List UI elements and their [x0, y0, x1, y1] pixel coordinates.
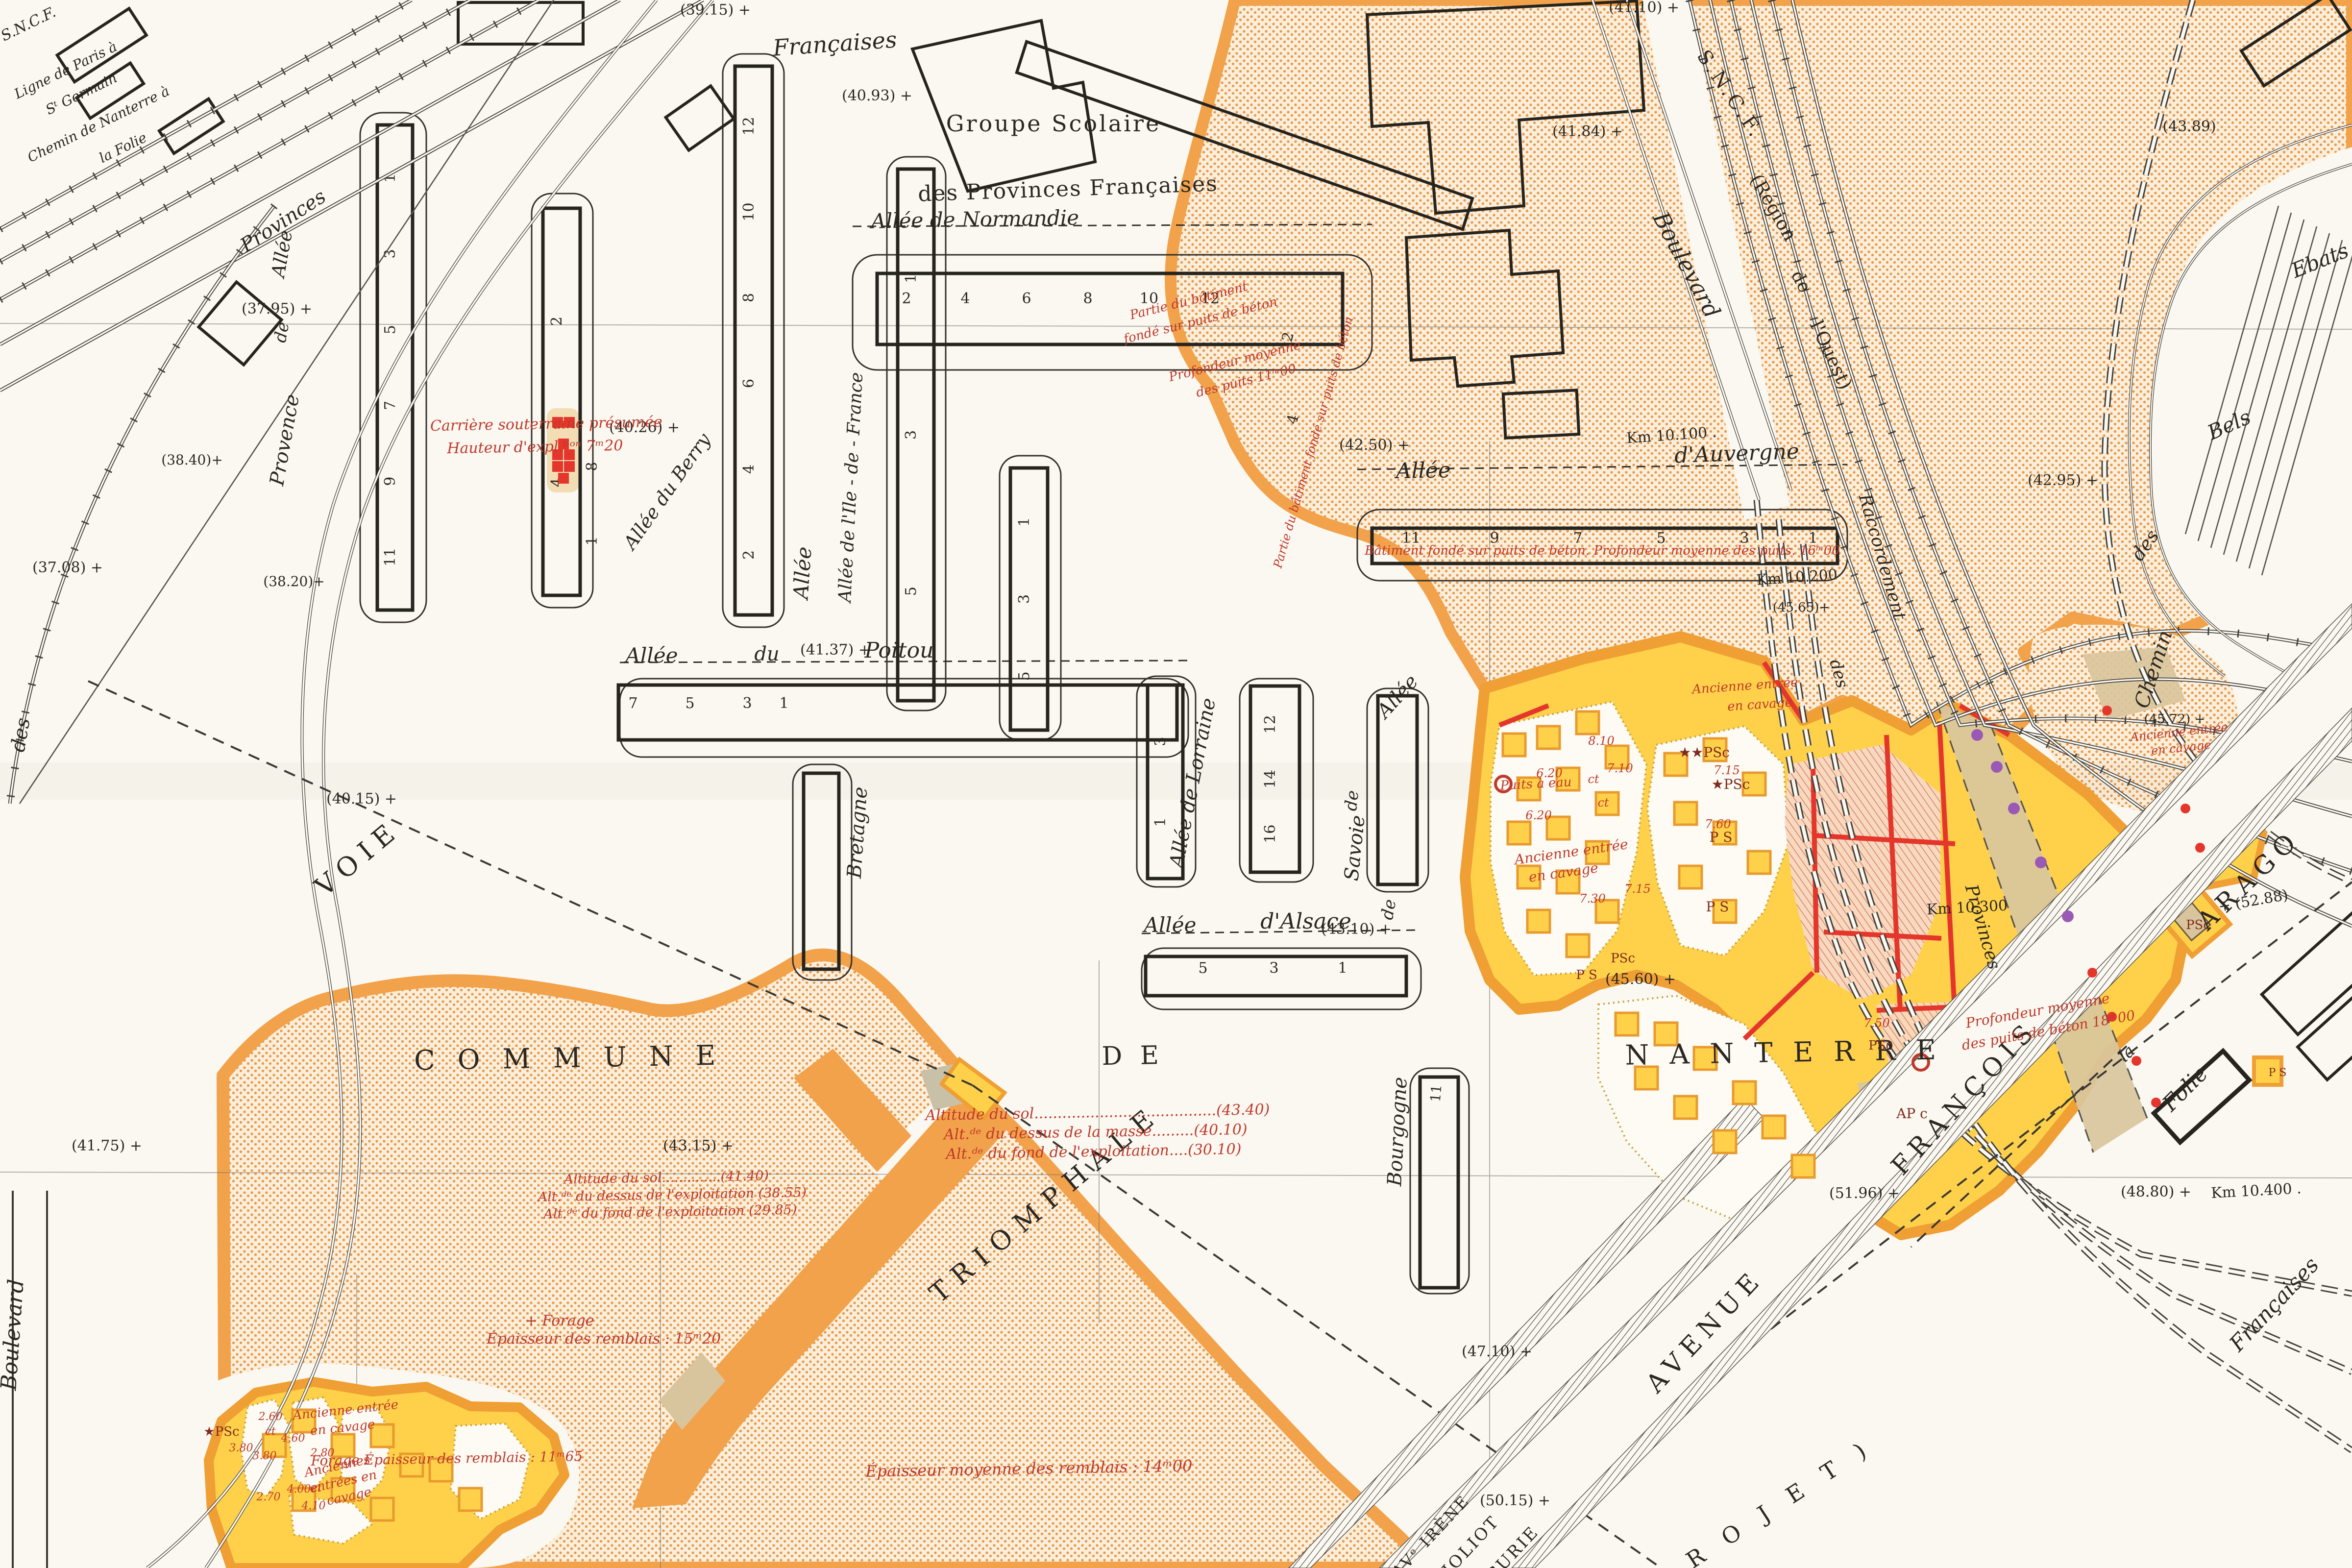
dep-13: 2.80 — [310, 1447, 335, 1459]
quarry-pillar — [459, 1488, 482, 1511]
red-dot-marker — [2087, 968, 2097, 978]
ps-2: ★PSc — [1712, 776, 1750, 792]
carriere-red-square — [558, 473, 569, 484]
purple-dot-marker — [2035, 857, 2047, 868]
red-dot-marker — [2180, 804, 2190, 813]
carriere-red-square — [564, 461, 575, 472]
lbl-de-bourgogne-sm: de — [1377, 898, 1400, 921]
building-strip-normandie-number-4: 4 — [960, 290, 970, 307]
elev-38-40: (38.40)+ — [161, 452, 222, 468]
purple-dot-marker — [2008, 803, 2020, 814]
red-forage-2: Épaisseur des remblais : 15ᵐ20 — [486, 1330, 721, 1347]
lbl-allee-auvergne-2: d'Auvergne — [1674, 439, 1799, 468]
lbl-de-savoie: de — [1341, 789, 1363, 812]
ct-1: ct — [1588, 772, 1599, 786]
purple-dot-marker — [1971, 729, 1983, 741]
quarry-pillar — [1748, 851, 1770, 874]
building-col-5-number-1: 1 — [1016, 517, 1033, 527]
building-col-3-number-4: 4 — [740, 465, 758, 474]
lbl-allee-alsace-1: Allée — [1142, 913, 1197, 937]
red-dot-marker — [2195, 843, 2205, 853]
dep-10: 2.60 — [258, 1411, 283, 1423]
bn-11-bourgogne: 11 — [1427, 1084, 1445, 1102]
building-col-4-number-1: 1 — [903, 274, 920, 283]
red-batiment-auvergne: Bâtiment fondé sur puits de béton. Profo… — [1364, 543, 1840, 558]
building-col-1-number-7: 7 — [382, 401, 399, 410]
quarry-pillar — [1576, 711, 1599, 734]
lbl-groupe-scolaire: Groupe Scolaire — [946, 110, 1161, 137]
quarry-pillar — [1792, 1155, 1814, 1177]
purple-dot-marker — [1991, 761, 2003, 773]
carriere-red-square — [552, 461, 563, 472]
building-col-1-number-11: 11 — [382, 548, 399, 566]
quarry-pillar — [1763, 1116, 1785, 1138]
dep-14: 3.80 — [253, 1450, 277, 1462]
ps-11: AP c — [1896, 1105, 1928, 1122]
dep-6: 7.15 — [1624, 882, 1650, 896]
lbl-allee-poitou-2: du — [754, 643, 779, 665]
quarry-pillar — [1567, 934, 1589, 957]
quarry-pillar — [1527, 910, 1550, 932]
dep-8: 7.60 — [1705, 817, 1731, 831]
building-col-1-number-9: 9 — [382, 476, 399, 486]
building-strip-normandie-number-8: 8 — [1083, 290, 1092, 307]
elev-45-65: (45.65)+ — [1773, 600, 1830, 615]
ps-5: PSc — [1611, 951, 1635, 966]
elev-40-15: (40.15) + — [326, 790, 397, 808]
quarry-pillar — [1674, 1096, 1697, 1119]
ps-7: PSc — [1868, 1038, 1893, 1053]
building-strip-poitou-number-1: 1 — [779, 695, 788, 712]
building-strip-poitou-number-3: 3 — [742, 695, 752, 712]
elev-51-96: (51.96) + — [1829, 1185, 1900, 1202]
dep-2: 7.10 — [1607, 761, 1633, 775]
elev-39-15: (39.15) + — [680, 1, 751, 19]
building-col-3-number-10: 10 — [740, 202, 758, 221]
quarry-pillar — [1508, 822, 1530, 844]
dep-15: 2.70 — [256, 1491, 281, 1503]
elev-41-37: (41.37) + — [800, 641, 871, 659]
elev-41-84: (41.84) + — [1552, 123, 1623, 140]
building-col-4-number-3: 3 — [903, 430, 920, 440]
elev-43-89: (43.89) — [2162, 118, 2216, 135]
quarry-pillar — [1616, 1013, 1638, 1035]
dep-3: 6.20 — [1536, 766, 1562, 780]
elev-41-75: (41.75) + — [72, 1137, 142, 1154]
elev-48-80: (48.80) + — [2121, 1183, 2191, 1200]
lbl-nanterre: N A N T E R R E — [1625, 1034, 1942, 1071]
building-col-2-number-2: 2 — [548, 317, 565, 326]
ct-4: ct — [311, 1482, 321, 1494]
purple-dot-marker — [2062, 910, 2074, 922]
building-strip-poitou-number-7: 7 — [628, 695, 637, 712]
building-strip-normandie-number-2: 2 — [902, 290, 911, 307]
building-col-7-number-14: 14 — [1262, 770, 1279, 788]
building-col-7-number-16: 16 — [1262, 825, 1279, 843]
lbl-commune: C O M M U N E — [414, 1040, 722, 1077]
ps-1: ★★PSc — [1679, 744, 1730, 760]
elev-38-20: (38.20)+ — [263, 573, 324, 589]
building-col-5-number-3: 3 — [1016, 594, 1033, 604]
map-sheet: { "map": { "type": "historical-survey-ma… — [0, 0, 2352, 1568]
quarry-pillar — [1733, 1081, 1756, 1104]
ps-6: P S — [1576, 968, 1597, 982]
ct-3: ct — [265, 1425, 275, 1438]
ct-2: ct — [1597, 796, 1609, 809]
lbl-allee-auvergne-1: Allée — [1394, 458, 1451, 484]
dep-1: 8.10 — [1588, 734, 1614, 748]
elev-43-15: (43.15) + — [663, 1137, 734, 1154]
elev-41-10: (41.10) + — [1609, 0, 1679, 16]
quarry-pillar — [1674, 802, 1697, 825]
elev-43-10: (43.10) + — [1321, 921, 1392, 938]
building-col-3-number-2: 2 — [740, 550, 758, 560]
red-carriere-2: Hauteur d'expl.ᵗⁱᵒⁿ 7ᵐ20 — [446, 437, 623, 457]
elev-37-08: (37.08) + — [32, 559, 103, 576]
building-col-3-number-12: 12 — [740, 117, 758, 135]
building-col-3-number-6: 6 — [740, 379, 758, 388]
dep-17: 4.00 — [287, 1483, 311, 1495]
bn-rot-1: 1 — [584, 536, 601, 545]
quarry-pillar — [1503, 734, 1525, 756]
building-strip-alsace-number-3: 3 — [1269, 960, 1278, 977]
lbl-de: D E — [1102, 1041, 1164, 1071]
building-strip-alsace-number-5: 5 — [1198, 960, 1207, 977]
elev-47-10: (47.10) + — [1462, 1343, 1532, 1360]
ps-3: P S — [1710, 829, 1733, 845]
building-col-3-number-8: 8 — [740, 293, 758, 302]
quarry-pillar — [1679, 866, 1702, 888]
dep-11: 3.80 — [229, 1442, 253, 1454]
dep-4: 6.20 — [1525, 808, 1551, 822]
lbl-allee-provence-2: de — [270, 320, 294, 344]
ps-8: PSc — [2186, 918, 2210, 932]
elev-50-15: (50.15) + — [1480, 1492, 1550, 1509]
building-col-7-number-12: 12 — [1262, 715, 1279, 734]
dep-9: 7.50 — [1863, 1016, 1889, 1030]
map-canvas: 1357911241210864213513531121416246810121… — [0, 0, 2352, 1568]
ps-10: P S — [2269, 1067, 2287, 1079]
elev-45-60: (45.60) + — [1605, 971, 1676, 988]
elev-42-95: (42.95) + — [2028, 472, 2098, 489]
building-strip-alsace-number-1: 1 — [1338, 960, 1347, 977]
dep-16: 4.10 — [301, 1500, 326, 1512]
ps-4: P S — [1706, 899, 1729, 915]
quarry-pillar — [1714, 1130, 1736, 1153]
lbl-allee-school-west: Allée — [788, 546, 816, 602]
quarry-pillar — [371, 1498, 393, 1520]
dep-12: 4.60 — [281, 1432, 305, 1445]
building-col-4-number-5: 5 — [903, 587, 920, 596]
building-strip-normandie-number-6: 6 — [1022, 290, 1031, 307]
lbl-allee-normandie: Allée de Normandie — [869, 205, 1079, 233]
building-col-6-number-1: 1 — [1152, 817, 1169, 827]
elev-42-50: (42.50) + — [1339, 437, 1410, 454]
quarry-pillar — [1537, 726, 1560, 749]
red-forage-1: + Forage — [525, 1312, 594, 1329]
elev-40-93: (40.93) + — [842, 87, 912, 104]
ps-9: ★PSc — [203, 1424, 239, 1439]
dep-5: 7.30 — [1579, 892, 1605, 906]
bn-rot-8: 8 — [584, 462, 601, 471]
red-dot-marker — [2102, 706, 2112, 715]
dep-7: 7.15 — [1714, 763, 1739, 777]
building-strip-poitou-number-5: 5 — [685, 695, 694, 712]
elev-37-95: (37.95) + — [242, 300, 312, 318]
building-col-1-number-5: 5 — [382, 325, 399, 334]
lbl-allee-poitou-3: Poitou — [864, 638, 934, 663]
building-col-5-number-5: 5 — [1016, 671, 1033, 681]
lbl-allee-poitou-1: Allée — [624, 643, 678, 667]
